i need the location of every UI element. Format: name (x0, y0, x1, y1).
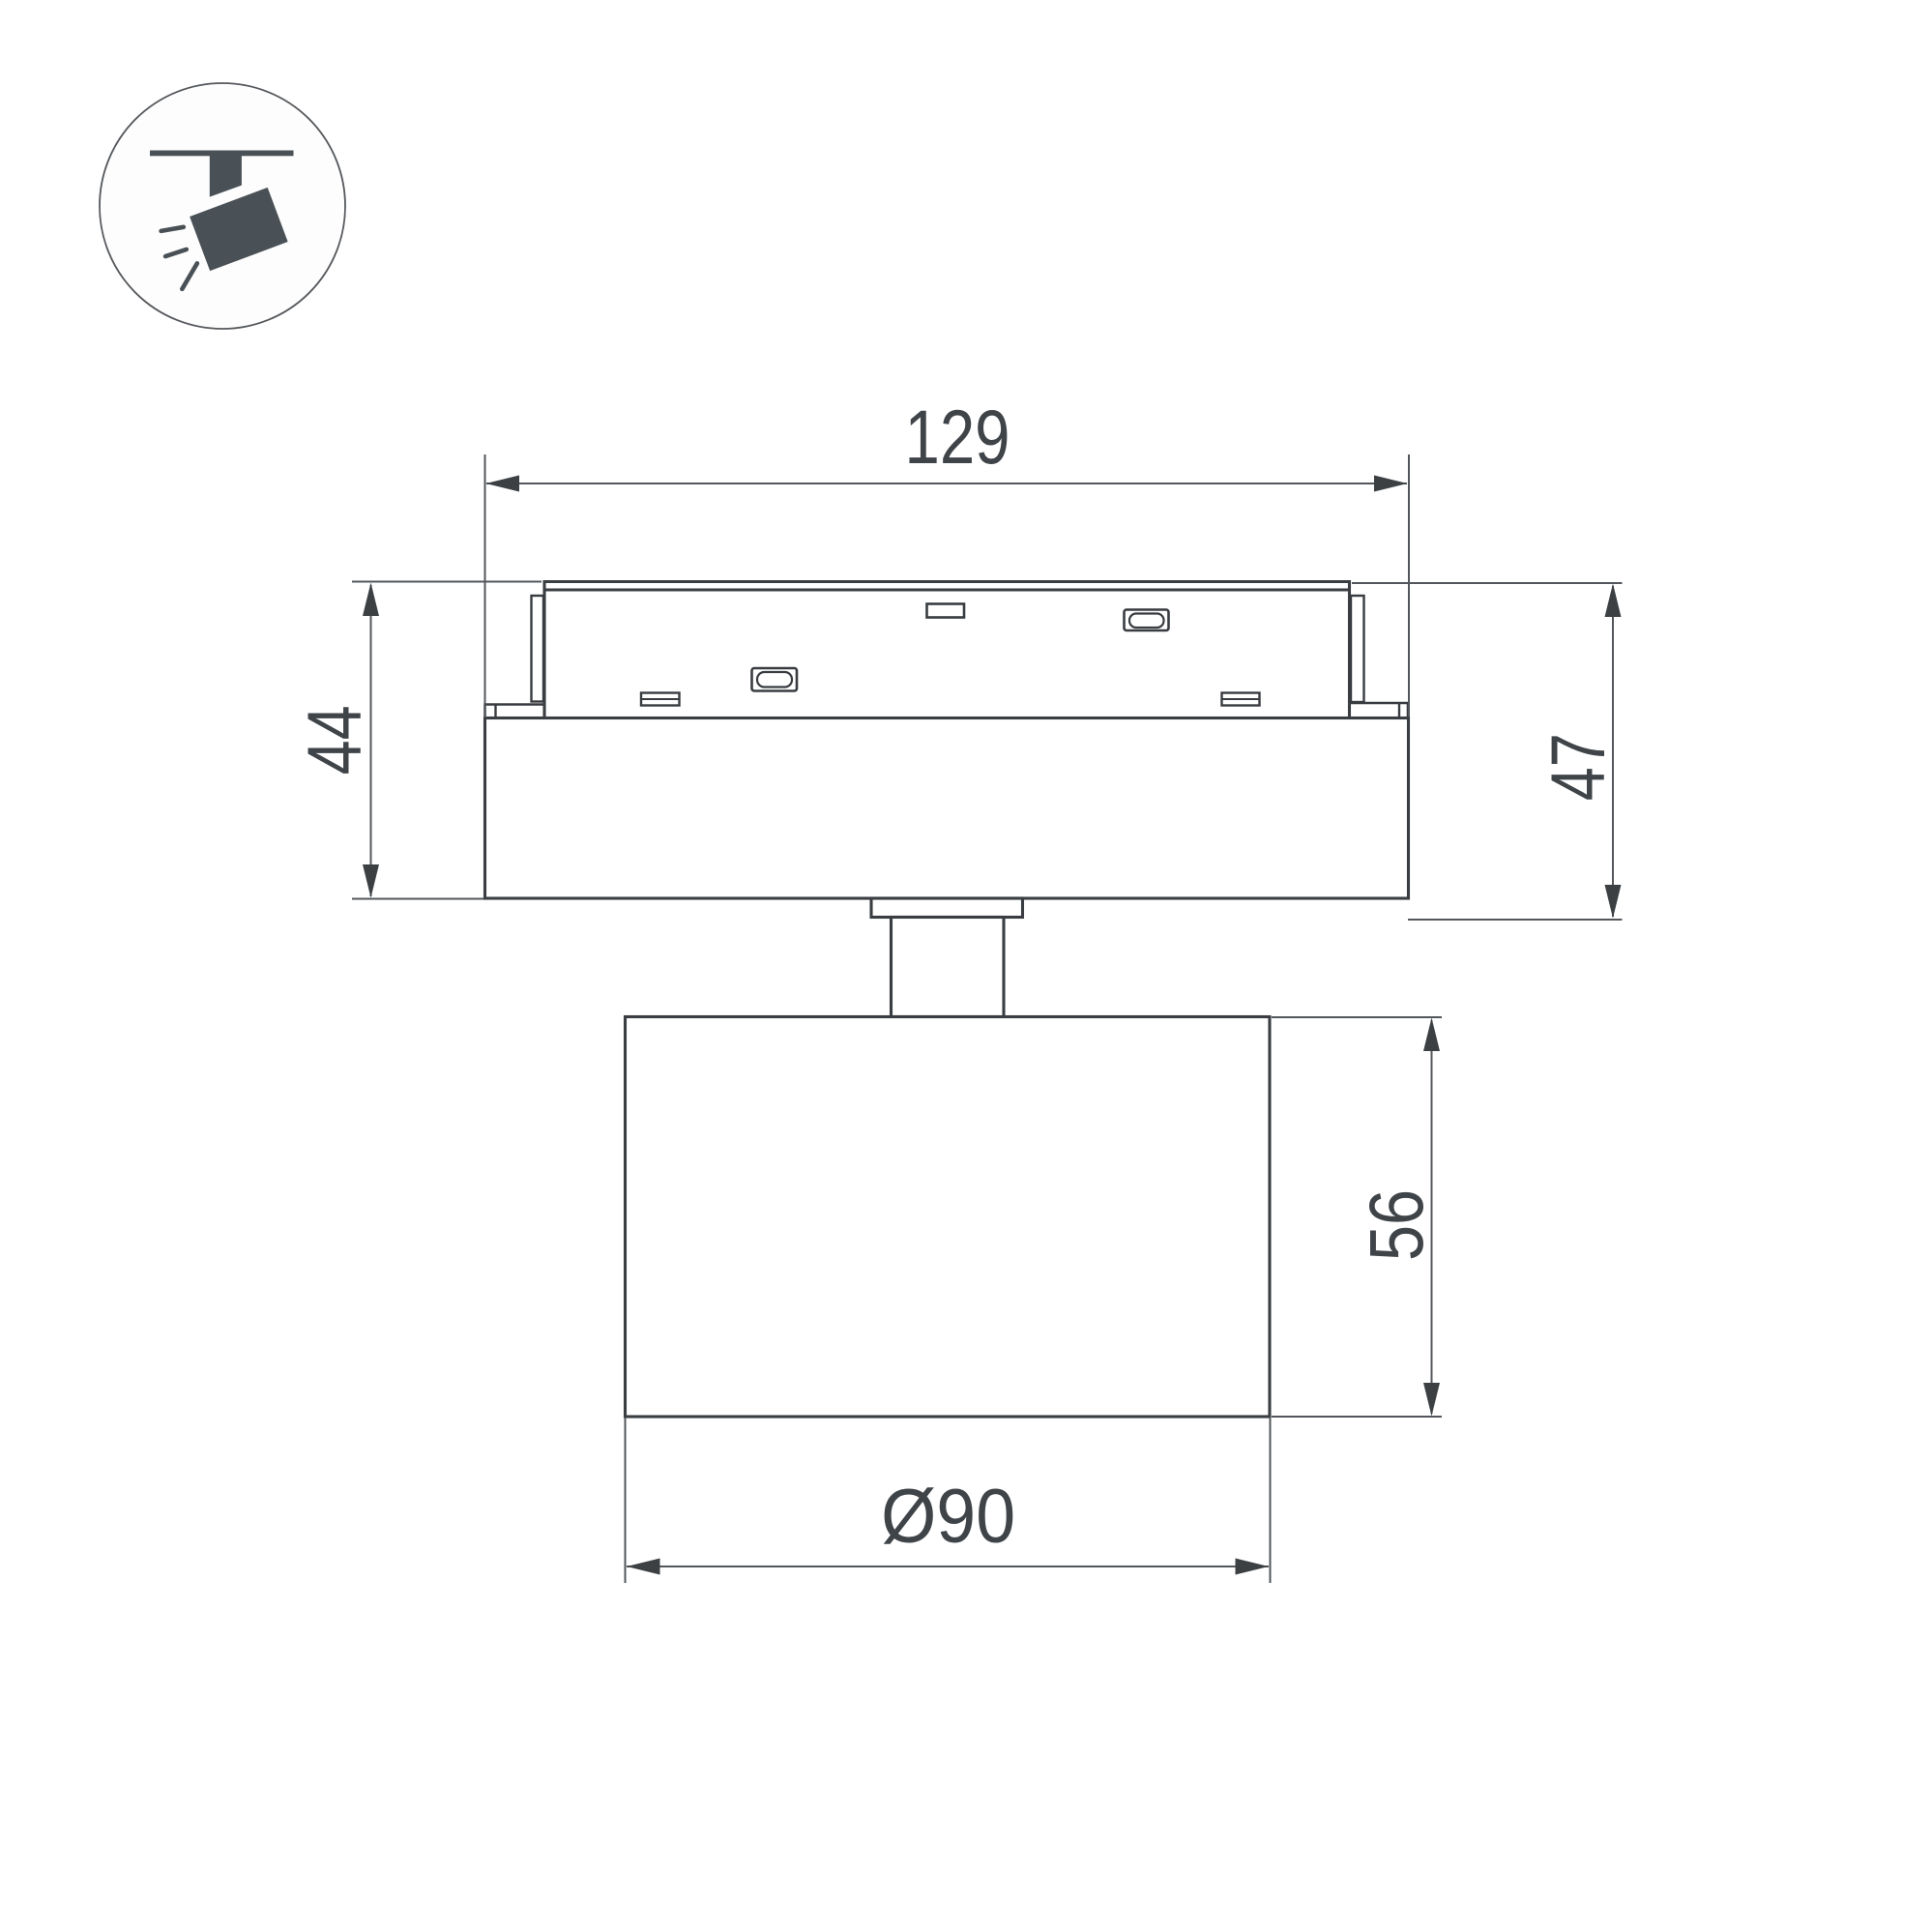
svg-text:129: 129 (905, 394, 1010, 480)
svg-text:56: 56 (1353, 1189, 1439, 1261)
svg-text:44: 44 (291, 705, 377, 775)
svg-text:Ø90: Ø90 (881, 1473, 1015, 1559)
svg-text:47: 47 (1535, 733, 1621, 801)
